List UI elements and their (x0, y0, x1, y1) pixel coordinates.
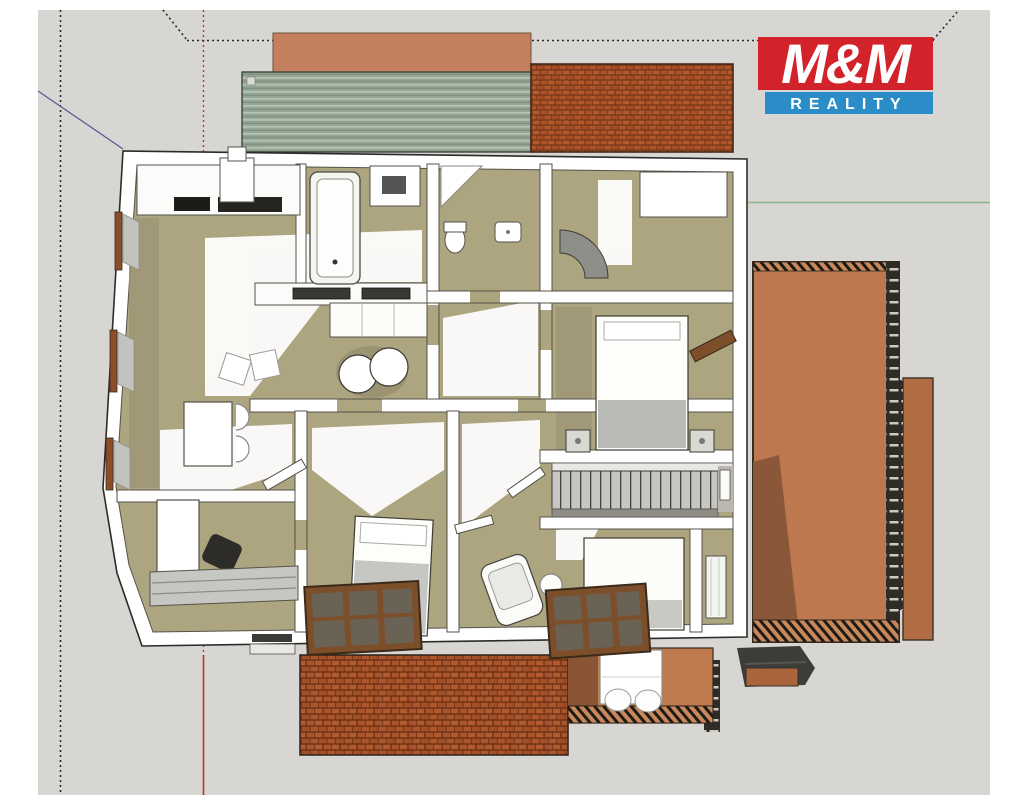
dining-chair (250, 350, 281, 381)
bathtub-drain (333, 260, 338, 265)
window-frame (106, 438, 113, 490)
rooflight-box (220, 158, 254, 202)
roof-top-hatch (753, 262, 899, 271)
skylight-2 (546, 584, 650, 659)
dormer-tile (746, 668, 798, 686)
pouf (370, 348, 408, 386)
floorplan-render-page: M&M REALITY (0, 0, 1024, 805)
window-sill (123, 214, 139, 270)
skylight-1 (304, 581, 421, 655)
south-tiled-roof (300, 655, 568, 755)
stairs-south-wall (540, 517, 733, 529)
terrace-chair (605, 689, 631, 711)
stairs-door (720, 470, 730, 500)
wall-vertical (540, 164, 552, 399)
stairs-rail-low (552, 509, 718, 517)
stairs-steps (552, 471, 718, 509)
house (103, 147, 747, 658)
mm-reality-logo: M&M REALITY (758, 32, 933, 114)
floorplan-canvas: M&M REALITY (0, 0, 1024, 805)
wardrobe (640, 172, 727, 217)
logo-text-mm: M&M (781, 32, 912, 95)
wall-vertical (690, 529, 702, 632)
window-bench (150, 566, 298, 606)
door-opening (296, 520, 307, 550)
bed-pillow (360, 522, 427, 545)
nightstand-lamp (575, 438, 581, 444)
north-tiled-roof (531, 64, 733, 152)
window-frame (115, 212, 122, 270)
wall-vertical (447, 411, 459, 632)
deck-detail (247, 77, 255, 85)
wall-vertical (427, 164, 439, 399)
light-patch (598, 180, 632, 265)
bed-pillow (604, 322, 680, 340)
roof-bottom-hatch (753, 620, 899, 642)
desk (157, 500, 199, 572)
door-opening (518, 400, 546, 412)
terrace-chair (635, 690, 661, 712)
sink (293, 288, 350, 299)
entrance-mat (252, 634, 292, 642)
door-opening (337, 400, 382, 412)
radiator (706, 556, 726, 618)
door-opening (470, 292, 500, 303)
logo-text-reality: REALITY (790, 96, 907, 113)
green-deck (242, 72, 531, 152)
entrance-step (250, 644, 295, 654)
bath-cabinet-inset (382, 176, 406, 194)
toilet-tank (444, 222, 466, 232)
rooflight-flap (228, 147, 246, 161)
nightstand-lamp (699, 438, 705, 444)
door-opening (428, 305, 439, 345)
sofa (330, 303, 427, 337)
door-opening (541, 310, 552, 350)
washbasin-drain (506, 230, 510, 234)
dining-table (184, 402, 232, 466)
west-room-wall (117, 490, 297, 502)
window-frame (110, 330, 117, 392)
window-sill (114, 440, 130, 490)
stairs-rail (552, 463, 733, 471)
staircase (552, 463, 733, 517)
bed-blanket (598, 400, 686, 448)
roof-panel-back (903, 378, 933, 640)
oven (174, 197, 210, 211)
sink (362, 288, 410, 299)
closet-room (640, 172, 727, 217)
roof-right-ladder-edge (886, 262, 899, 642)
entrance (250, 634, 295, 654)
window-sill (118, 332, 134, 392)
pergola-roof (273, 33, 531, 72)
